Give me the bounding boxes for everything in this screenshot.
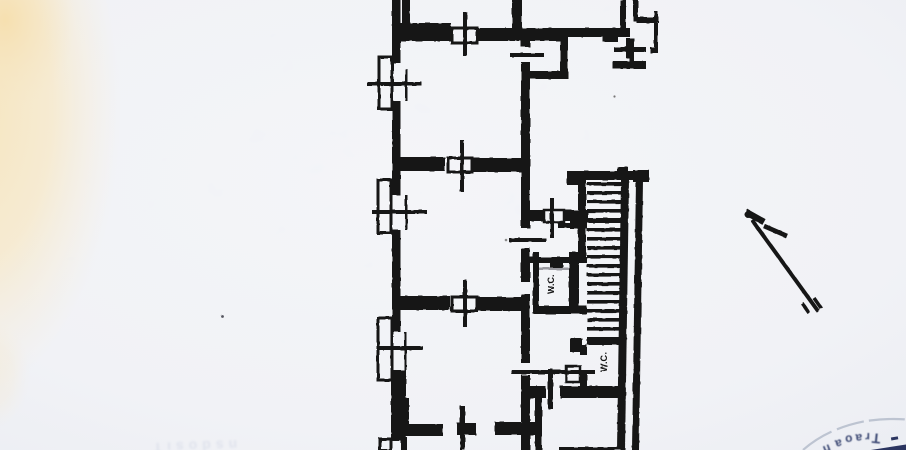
svg-text:a: a [855,431,863,445]
svg-text:W.C.: W.C. [599,353,609,373]
svg-text:W.C.: W.C. [546,275,556,295]
svg-text:r: r [865,430,870,444]
